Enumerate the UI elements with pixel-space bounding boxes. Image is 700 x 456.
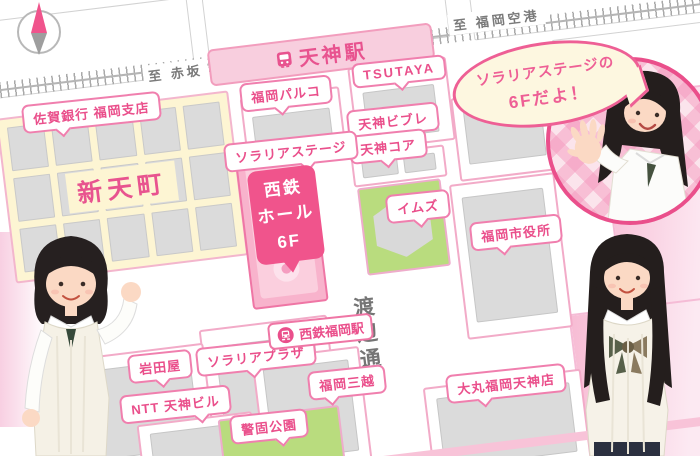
access-map: 新天町 xyxy=(0,0,700,456)
photo-girl-right xyxy=(552,228,700,456)
train-circle-icon xyxy=(276,326,295,345)
compass-north-icon xyxy=(12,0,66,60)
venue-box-nishitetsu-hall: 西鉄 ホール 6F xyxy=(247,164,326,266)
venue-pointer xyxy=(283,259,302,274)
train-icon xyxy=(274,49,294,69)
photo-girl-left xyxy=(5,226,145,456)
